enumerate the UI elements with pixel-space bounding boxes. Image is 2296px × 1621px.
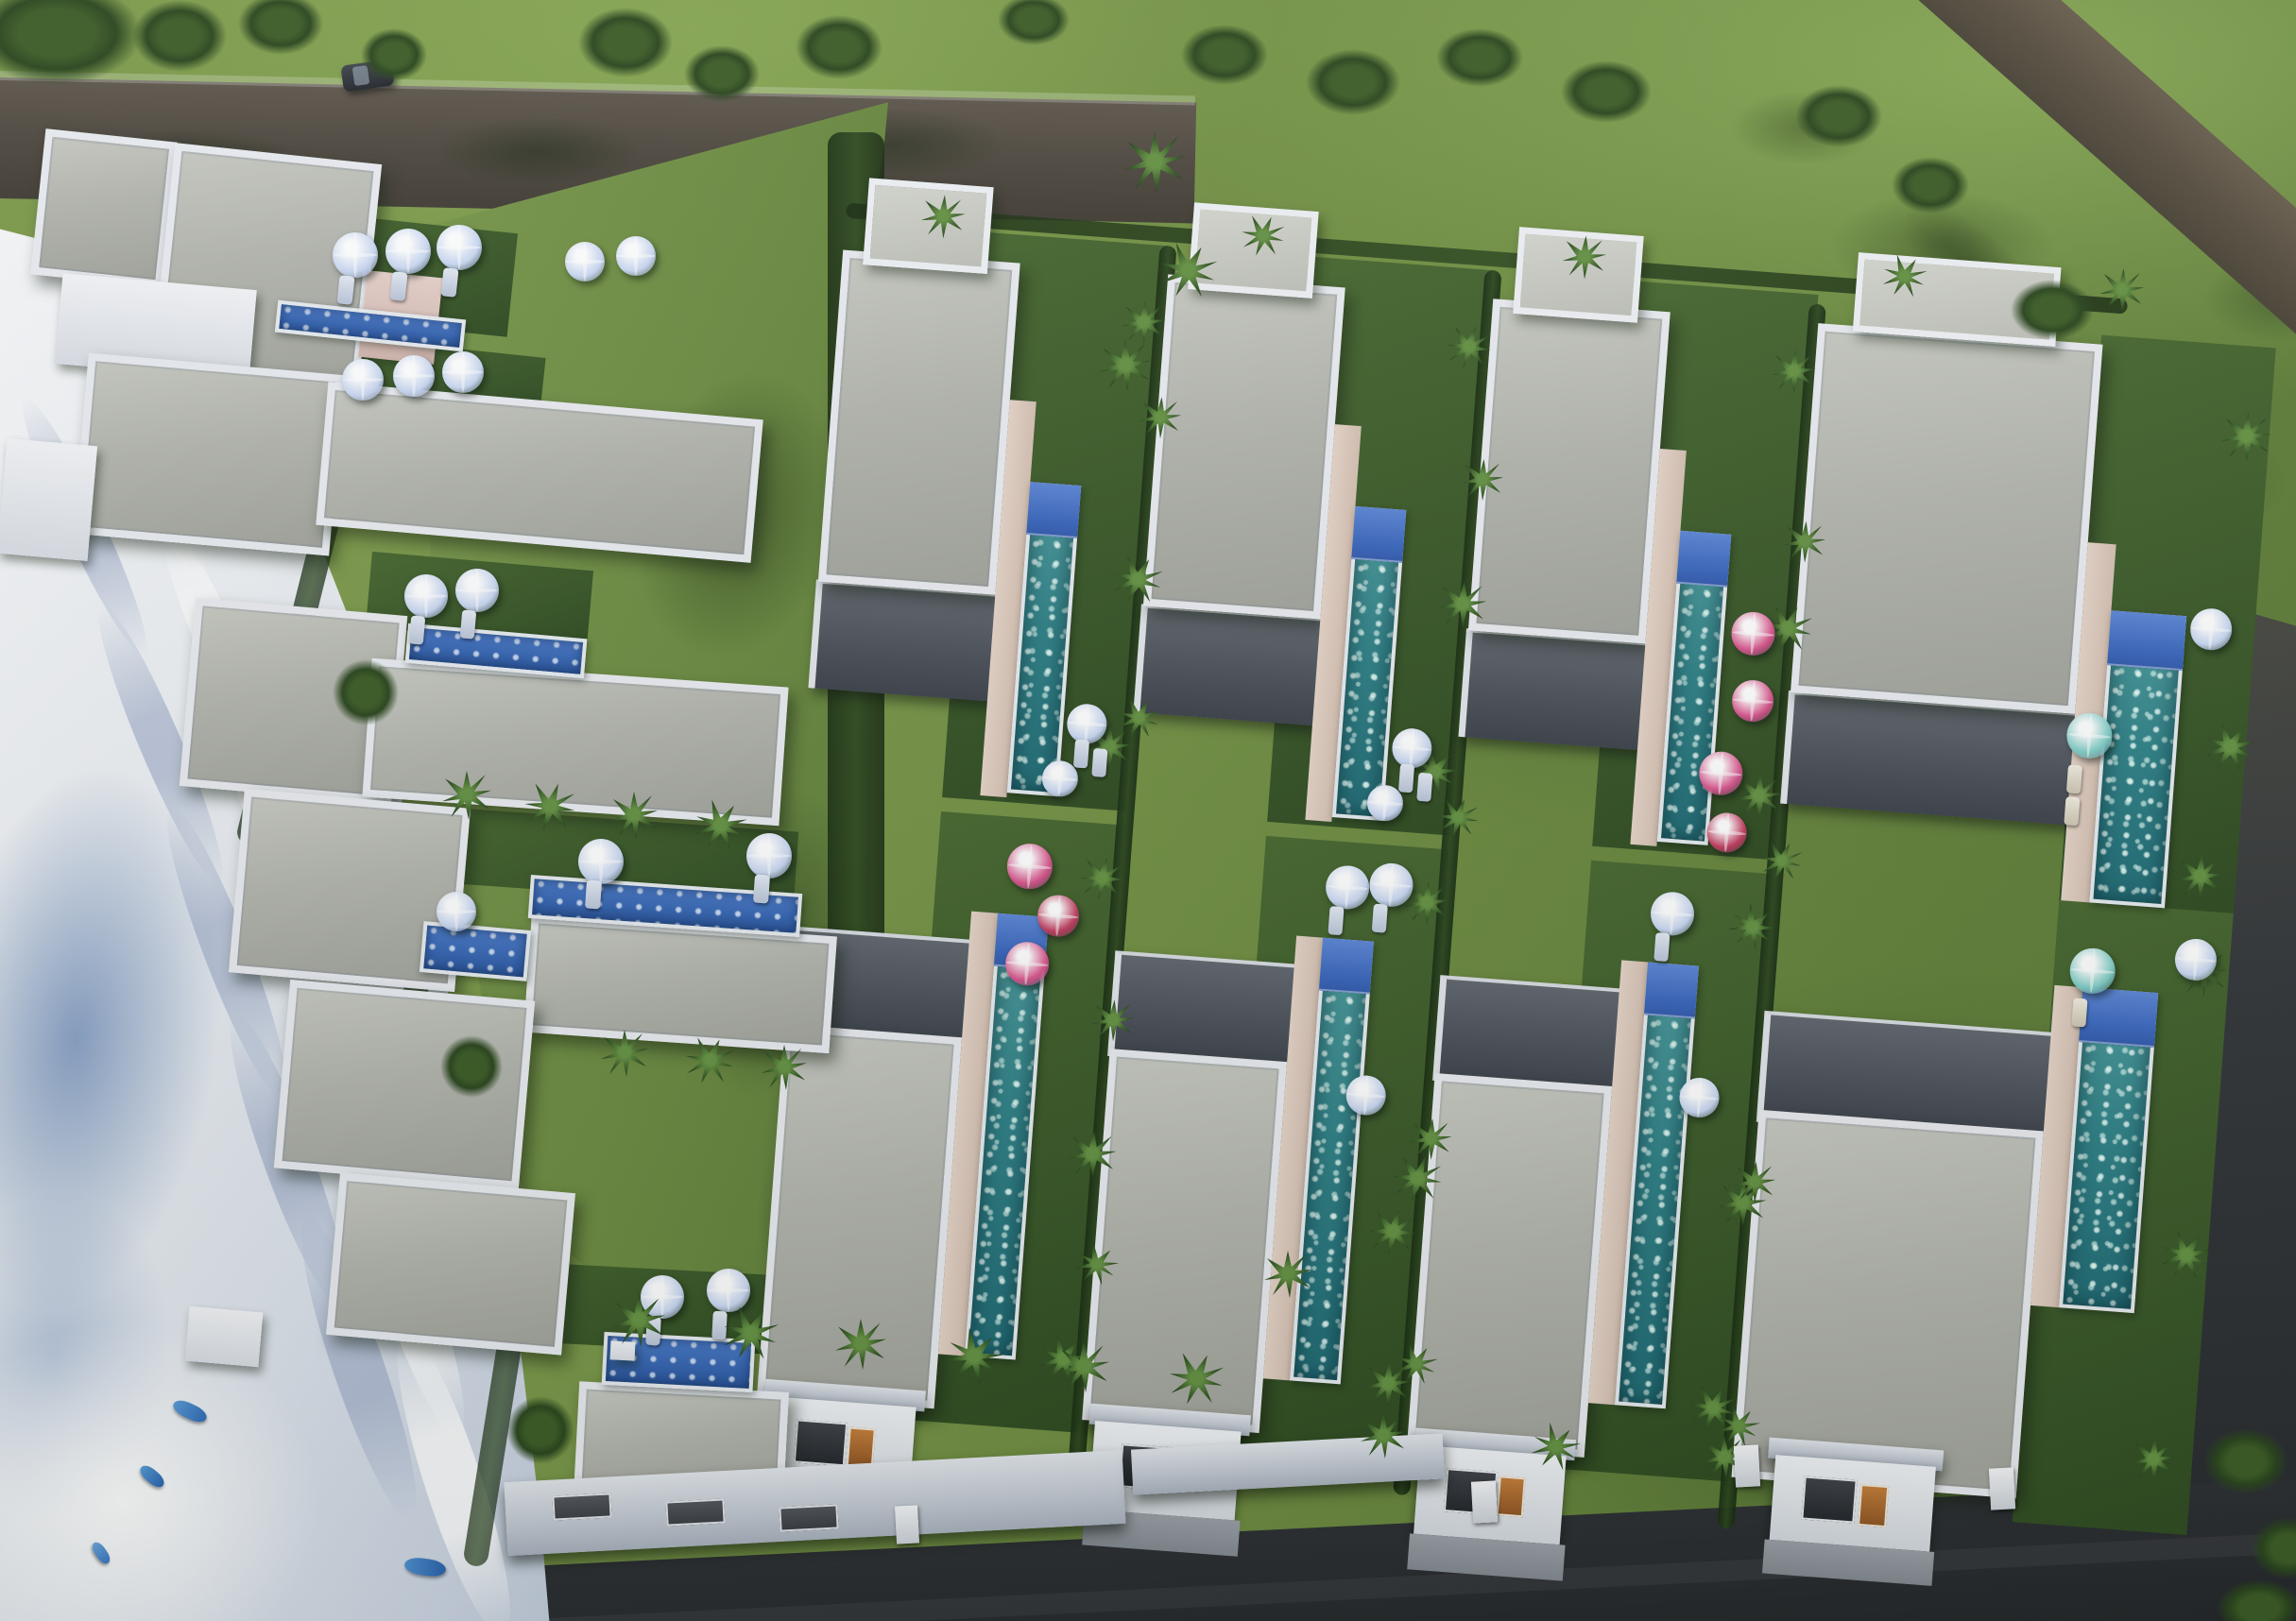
- lounge-chair: [753, 874, 770, 903]
- roadside-bush: [2203, 1428, 2288, 1494]
- tree-canopy: [1892, 157, 1969, 213]
- lounge-chair: [711, 1311, 728, 1340]
- pool-cover: [1676, 531, 1731, 588]
- villa-roof-long: [362, 658, 788, 826]
- umbrella-white: [746, 833, 792, 879]
- villa-roof-dark: [1458, 628, 1669, 752]
- villa-roof: [1791, 323, 2103, 714]
- lounge-chair: [1653, 932, 1670, 962]
- umbrella-white: [342, 359, 384, 401]
- umbrella-white: [442, 351, 484, 393]
- tree-canopy: [361, 28, 427, 81]
- lounge-chair: [409, 615, 426, 644]
- villa-roof: [73, 353, 345, 556]
- shore-bush: [333, 659, 399, 725]
- tree-canopy: [1306, 49, 1400, 115]
- tree-canopy: [1181, 25, 1268, 85]
- entrance-window: [1801, 1476, 1857, 1523]
- aerial-resort-scene: [0, 0, 2296, 1621]
- pool-steps: [609, 1340, 635, 1360]
- tree-canopy: [0, 0, 142, 85]
- villa-roof-dark: [1133, 604, 1344, 727]
- villa-roof: [818, 250, 1020, 595]
- tree-canopy: [578, 8, 673, 77]
- lounge-chair: [1091, 748, 1107, 777]
- pool-cover: [1319, 938, 1374, 995]
- entrance-door: [1497, 1476, 1526, 1517]
- villa-roof: [1143, 274, 1345, 619]
- tree-canopy: [998, 0, 1070, 45]
- tree-canopy: [796, 15, 882, 79]
- shore-bush: [506, 1396, 574, 1464]
- gate-post: [895, 1505, 919, 1544]
- pool-cover: [2107, 610, 2186, 671]
- pool-cover: [2079, 987, 2158, 1048]
- villa-wall: [185, 1306, 264, 1368]
- villa-roof-upper: [1513, 227, 1644, 323]
- lounge-chair: [440, 267, 458, 298]
- tree-canopy: [1436, 28, 1523, 87]
- gate-post: [1734, 1444, 1760, 1487]
- umbrella-white: [404, 574, 448, 618]
- umbrella-white: [455, 569, 499, 612]
- villa-roof: [1468, 299, 1671, 643]
- entrance-window: [794, 1419, 848, 1466]
- villa-roof: [326, 1172, 575, 1355]
- sea-foam-bright: [0, 1322, 321, 1621]
- street-window: [552, 1493, 611, 1520]
- lounge-chair: [336, 275, 354, 305]
- umbrella-white: [437, 225, 482, 270]
- tree-canopy: [684, 45, 760, 102]
- lounge-chair: [1416, 773, 1432, 802]
- shore-bush: [440, 1035, 503, 1098]
- lounge-chair: [1073, 739, 1089, 768]
- lounge-chair: [460, 609, 477, 639]
- gate-post: [1989, 1467, 2015, 1510]
- lounge-chair: [1398, 763, 1414, 793]
- umbrella-white: [565, 242, 605, 282]
- lounge-chair: [389, 271, 407, 301]
- tree-canopy: [1561, 60, 1652, 123]
- entrance-door: [1858, 1484, 1889, 1527]
- villa-roof-upper: [1188, 202, 1319, 299]
- villa-roof-dark: [808, 579, 1019, 703]
- tree-canopy: [1795, 85, 1882, 147]
- pool-cover: [1644, 963, 1699, 1019]
- tree-canopy: [238, 0, 323, 55]
- courtyard-pool: [420, 921, 531, 981]
- tree-canopy: [132, 0, 227, 72]
- tree-canopy: [2011, 280, 2094, 340]
- street-window: [665, 1498, 725, 1526]
- pool-cover: [1351, 506, 1406, 563]
- gate-post: [1471, 1480, 1498, 1523]
- lounge-chair: [2064, 796, 2080, 826]
- villa-roof: [30, 128, 177, 288]
- lounge-chair: [2066, 764, 2082, 793]
- lounge-chair: [1372, 904, 1388, 933]
- villa-roof-upper: [863, 178, 994, 274]
- street-window: [779, 1504, 838, 1531]
- umbrella-white: [616, 236, 656, 276]
- umbrella-white: [578, 839, 624, 884]
- lounge-chair: [1328, 906, 1344, 935]
- pool-cover: [1026, 482, 1081, 538]
- villa-wall: [0, 438, 97, 561]
- lounge-chair: [585, 879, 602, 909]
- umbrella-white: [393, 355, 435, 397]
- umbrella-white: [386, 229, 431, 274]
- umbrella-white: [437, 892, 476, 931]
- lounge-chair: [2071, 998, 2087, 1027]
- umbrella-white: [707, 1269, 750, 1312]
- umbrella-white: [333, 232, 378, 278]
